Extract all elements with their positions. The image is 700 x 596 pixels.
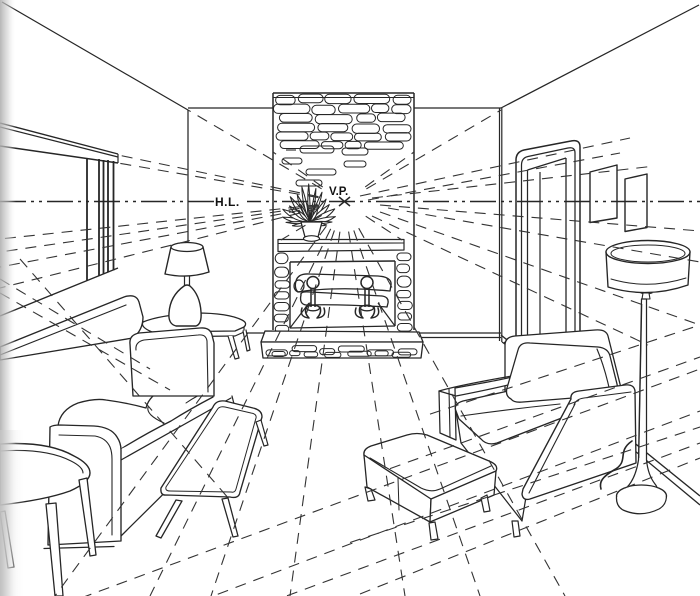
svg-text:H.L.: H.L. — [215, 195, 240, 209]
svg-text:V.P.: V.P. — [329, 186, 348, 198]
